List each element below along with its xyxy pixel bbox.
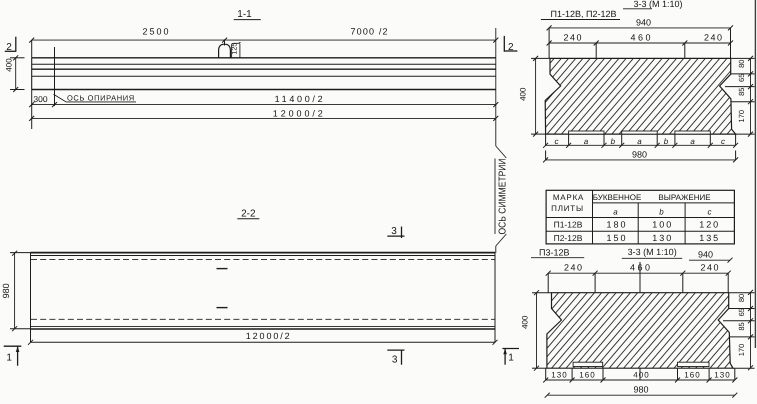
svg-text:400: 400 bbox=[521, 315, 530, 329]
svg-text:П1-12В, П2-12В: П1-12В, П2-12В bbox=[551, 9, 617, 19]
svg-text:980: 980 bbox=[633, 385, 648, 395]
svg-text:a: a bbox=[584, 137, 589, 146]
svg-text:БУКВЕННОЕ: БУКВЕННОЕ bbox=[593, 193, 642, 202]
svg-text:c: c bbox=[708, 208, 712, 217]
svg-text:400: 400 bbox=[5, 58, 14, 72]
svg-text:240: 240 bbox=[704, 33, 722, 43]
svg-text:ОСЬ СИММЕТРИИ: ОСЬ СИММЕТРИИ bbox=[498, 159, 509, 235]
svg-text:170: 170 bbox=[737, 344, 746, 357]
svg-text:c: c bbox=[721, 137, 725, 146]
svg-text:180: 180 bbox=[607, 220, 626, 230]
svg-text:a: a bbox=[637, 137, 642, 146]
svg-text:980: 980 bbox=[632, 150, 647, 160]
svg-text:130: 130 bbox=[714, 371, 730, 380]
svg-text:1: 1 bbox=[6, 353, 12, 364]
svg-text:240: 240 bbox=[564, 33, 582, 43]
svg-text:400: 400 bbox=[633, 371, 649, 380]
svg-text:160: 160 bbox=[684, 371, 700, 380]
svg-text:b: b bbox=[659, 208, 664, 217]
svg-text:460: 460 bbox=[630, 263, 650, 273]
svg-text:3: 3 bbox=[391, 226, 397, 237]
svg-text:130: 130 bbox=[652, 233, 671, 243]
svg-text:80: 80 bbox=[737, 294, 746, 302]
svg-text:125: 125 bbox=[231, 43, 238, 55]
svg-text:c: c bbox=[555, 137, 559, 146]
svg-text:300: 300 bbox=[33, 94, 47, 104]
svg-text:65: 65 bbox=[737, 74, 746, 82]
svg-text:3: 3 bbox=[392, 354, 398, 365]
svg-text:130: 130 bbox=[551, 371, 567, 380]
svg-text:940: 940 bbox=[636, 18, 651, 28]
svg-text:65: 65 bbox=[737, 308, 746, 316]
svg-text:a: a bbox=[690, 137, 695, 146]
svg-text:1: 1 bbox=[508, 353, 514, 364]
svg-text:П3-12В: П3-12В bbox=[539, 247, 570, 257]
svg-text:2: 2 bbox=[6, 42, 12, 53]
svg-text:85: 85 bbox=[737, 322, 746, 330]
svg-text:ВЫРАЖЕНИЕ: ВЫРАЖЕНИЕ bbox=[658, 193, 710, 202]
svg-text:7000 /2: 7000 /2 bbox=[351, 26, 388, 36]
svg-text:b: b bbox=[664, 137, 669, 146]
svg-text:b: b bbox=[611, 137, 616, 146]
svg-text:80: 80 bbox=[737, 60, 746, 68]
svg-text:a: a bbox=[613, 208, 618, 217]
svg-text:120: 120 bbox=[699, 220, 718, 230]
svg-text:П2-12В: П2-12В bbox=[554, 233, 583, 243]
svg-text:940: 940 bbox=[698, 249, 713, 259]
svg-text:1-1: 1-1 bbox=[237, 9, 252, 20]
svg-text:100: 100 bbox=[652, 220, 671, 230]
svg-text:МАРКА: МАРКА bbox=[553, 193, 584, 202]
svg-text:135: 135 bbox=[699, 233, 718, 243]
svg-text:2-2: 2-2 bbox=[241, 208, 256, 219]
svg-text:П1-12В: П1-12В bbox=[554, 220, 583, 230]
svg-text:150: 150 bbox=[607, 233, 626, 243]
svg-text:3-3 (М 1:10): 3-3 (М 1:10) bbox=[628, 247, 677, 257]
svg-text:240: 240 bbox=[564, 263, 582, 273]
svg-text:460: 460 bbox=[631, 33, 651, 43]
svg-text:ПЛИТЫ: ПЛИТЫ bbox=[551, 204, 584, 213]
svg-text:85: 85 bbox=[737, 88, 746, 96]
svg-text:2: 2 bbox=[508, 42, 514, 53]
svg-text:980: 980 bbox=[1, 283, 11, 298]
svg-text:400: 400 bbox=[519, 87, 528, 101]
svg-text:160: 160 bbox=[579, 371, 595, 380]
svg-text:3-3 (М 1:10): 3-3 (М 1:10) bbox=[633, 0, 682, 9]
svg-text:2500: 2500 bbox=[143, 26, 169, 36]
svg-text:ОСЬ ОПИРАНИЯ: ОСЬ ОПИРАНИЯ bbox=[67, 93, 135, 102]
svg-text:170: 170 bbox=[737, 110, 746, 123]
svg-text:240: 240 bbox=[701, 263, 719, 273]
